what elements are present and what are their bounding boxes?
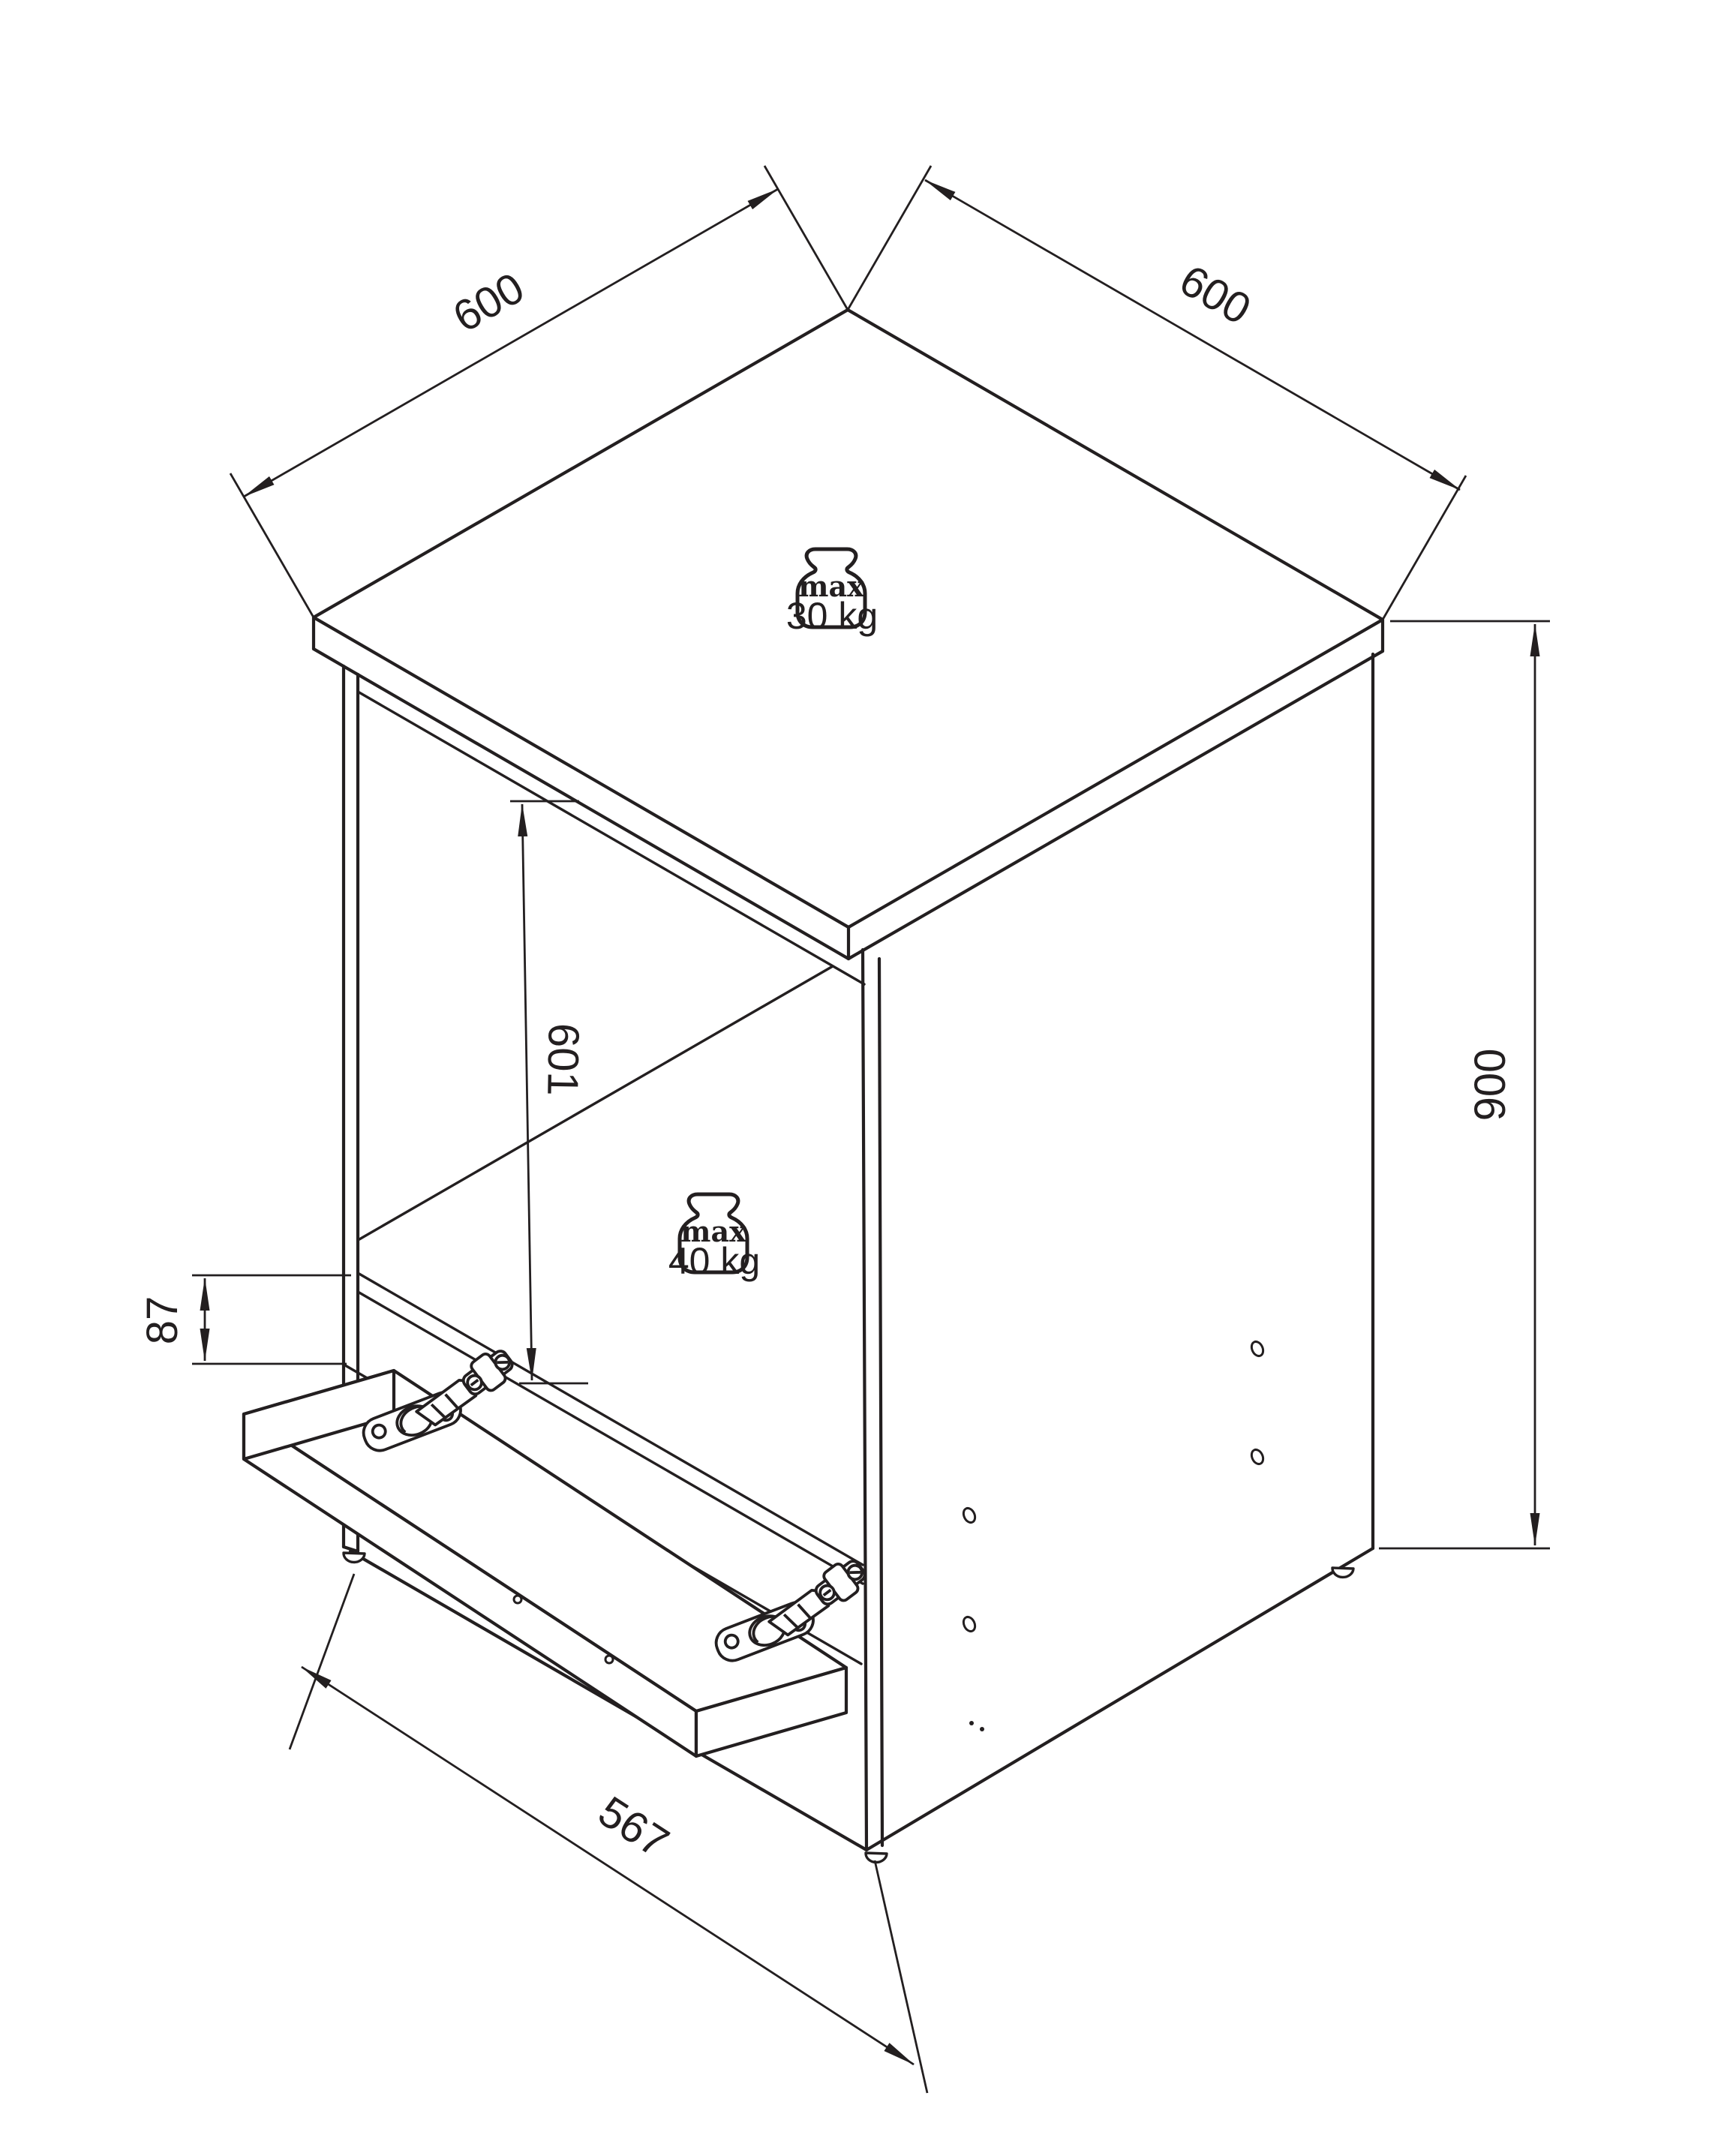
dowel-mark [969,1721,974,1725]
dim-label-door: 567 [590,1787,677,1867]
fitting-hole [961,1506,977,1524]
door-hole [514,1596,521,1603]
cabinet-assembly-diagram: 600 600 900 601 87 [0,0,1721,2156]
technical-drawing-page: 600 600 900 601 87 [0,0,1721,2156]
fitting-hole [1249,1448,1265,1466]
door-hole [605,1656,613,1663]
foot [866,1853,887,1863]
dim-top-left-width: 600 [230,166,848,617]
dowel-mark [980,1727,984,1731]
weight-limit-shelf: max 40 kg [668,1194,760,1282]
fitting-hole [961,1615,977,1633]
foot [344,1553,365,1562]
fitting-hole [1249,1340,1265,1358]
dim-label-top-right: 600 [1172,256,1259,335]
weight-top-value: 30 kg [786,595,878,637]
right-side-panel [863,654,1373,1850]
dim-niche-height: 601 [510,801,588,1383]
dim-top-right-depth: 600 [848,166,1466,620]
dim-front-lip: 87 [138,1275,351,1364]
dim-label-lip: 87 [138,1296,187,1345]
door-panel [244,1340,880,1756]
cabinet-body [314,310,1383,1863]
dim-label-niche: 601 [538,1022,588,1096]
dim-label-top-left: 600 [445,263,532,342]
dim-label-height: 900 [1466,1049,1515,1122]
dimensions: 600 600 900 601 87 [138,166,1550,2093]
weight-shelf-value: 40 kg [668,1240,760,1282]
dim-height: 900 [1379,621,1550,1548]
foot [1332,1568,1353,1577]
weight-limit-top: max 30 kg [786,549,878,637]
